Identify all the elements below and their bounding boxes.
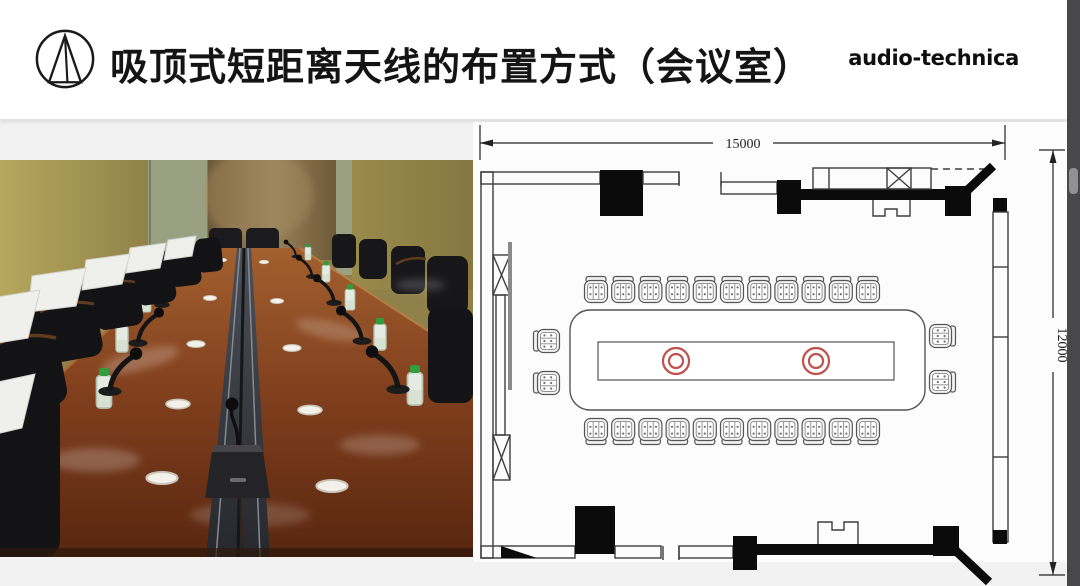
chair-icon	[775, 419, 798, 445]
chair-icon	[857, 419, 880, 445]
chair-icon	[721, 419, 744, 445]
chair-icon	[802, 419, 825, 445]
scrollbar-thumb[interactable]	[1069, 168, 1078, 194]
chair-icon	[775, 277, 798, 303]
chair-icon	[748, 277, 771, 303]
chair-icon	[639, 277, 662, 303]
dimension-height-label: 12000	[1054, 328, 1067, 363]
chair-icon	[748, 419, 771, 445]
dimension-width-label: 15000	[726, 137, 761, 152]
chair-icon	[829, 277, 852, 303]
chair-icon	[666, 277, 689, 303]
slide: 吸顶式短距离天线的布置方式（会议室） audio-technica	[0, 0, 1080, 586]
chair-icon	[585, 419, 608, 445]
conference-room-photo	[0, 160, 473, 557]
chair-icon	[930, 371, 956, 394]
page-title: 吸顶式短距离天线的布置方式（会议室）	[110, 36, 812, 91]
chair-icon	[829, 419, 852, 445]
chair-icon	[534, 330, 560, 353]
chair-icon	[930, 325, 956, 348]
slide-header: 吸顶式短距离天线的布置方式（会议室） audio-technica	[0, 0, 1067, 120]
plan-table	[570, 310, 925, 410]
chair-icon	[639, 419, 662, 445]
chair-icon	[693, 277, 716, 303]
scrollbar-track[interactable]	[1067, 0, 1080, 586]
chair-icon	[857, 277, 880, 303]
chair-icon	[612, 419, 635, 445]
chair-icon	[612, 277, 635, 303]
audio-technica-logo-icon	[34, 28, 96, 90]
front-right-chair	[428, 308, 473, 403]
chair-icon	[666, 419, 689, 445]
chair-icon	[693, 419, 716, 445]
chair-icon	[802, 277, 825, 303]
floor-plan: 15000 12000	[473, 122, 1067, 586]
chair-icon	[585, 277, 608, 303]
brand-wordmark: audio-technica	[848, 46, 1019, 70]
chair-icon	[534, 372, 560, 395]
chair-icon	[721, 277, 744, 303]
